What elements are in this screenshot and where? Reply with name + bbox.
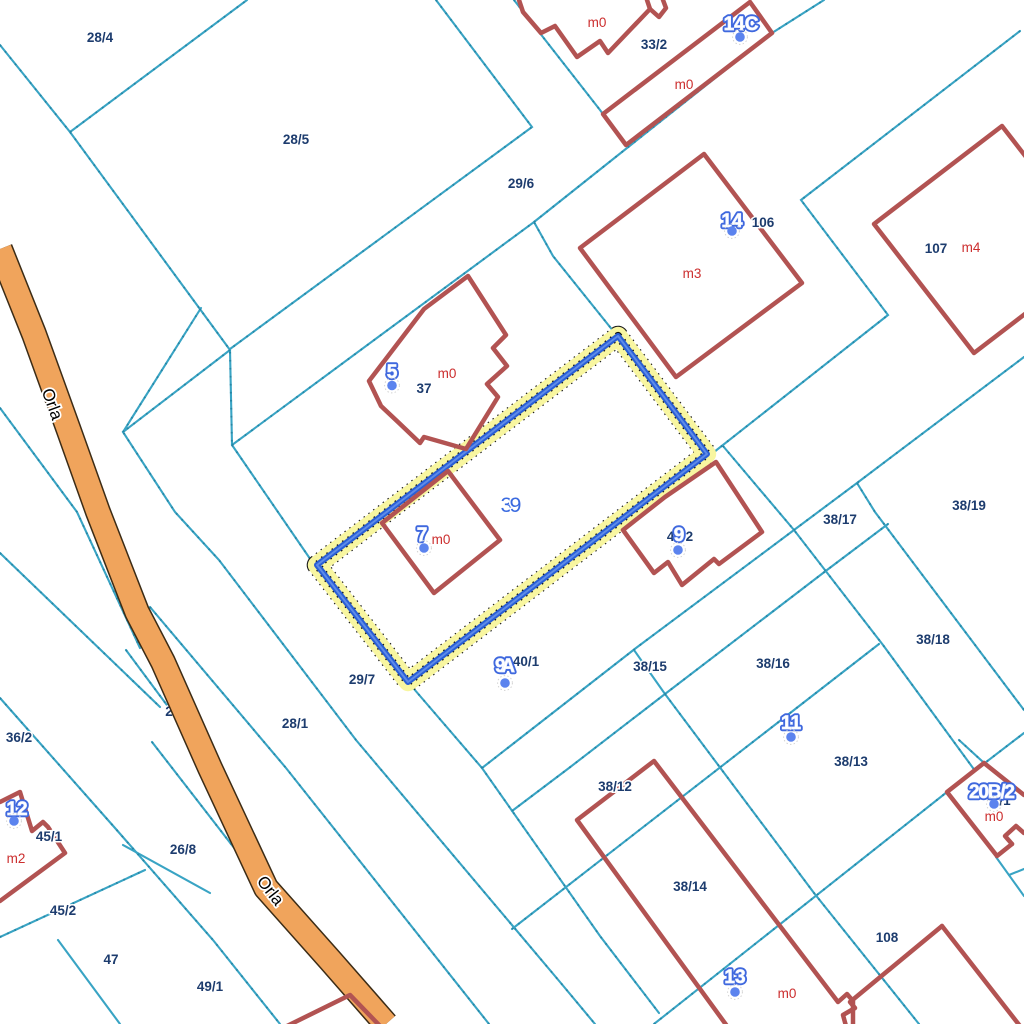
- svg-text:40/1: 40/1: [513, 654, 540, 669]
- svg-text:107: 107: [925, 241, 948, 256]
- svg-text:m4: m4: [962, 240, 981, 255]
- svg-text:45/2: 45/2: [50, 903, 76, 918]
- svg-text:14C: 14C: [724, 14, 759, 35]
- svg-text:m3: m3: [683, 266, 702, 281]
- svg-text:38/15: 38/15: [633, 659, 667, 674]
- svg-text:12: 12: [6, 799, 27, 820]
- svg-text:m0: m0: [438, 366, 457, 381]
- svg-text:26/8: 26/8: [170, 842, 197, 857]
- svg-text:11: 11: [781, 713, 802, 734]
- svg-text:38/13: 38/13: [834, 754, 868, 769]
- svg-text:5: 5: [387, 362, 398, 383]
- svg-text:m0: m0: [432, 532, 451, 547]
- svg-text:38/14: 38/14: [673, 879, 707, 894]
- svg-text:m0: m0: [778, 986, 797, 1001]
- svg-text:9: 9: [674, 525, 685, 546]
- svg-text:36/2: 36/2: [6, 730, 32, 745]
- svg-text:38/12: 38/12: [598, 779, 632, 794]
- svg-text:45/1: 45/1: [36, 829, 63, 844]
- svg-text:29/6: 29/6: [508, 176, 535, 191]
- svg-text:38/16: 38/16: [756, 656, 790, 671]
- svg-text:29/7: 29/7: [349, 672, 375, 687]
- svg-text:38/18: 38/18: [916, 632, 950, 647]
- svg-text:28/4: 28/4: [87, 30, 114, 45]
- svg-text:47: 47: [103, 952, 118, 967]
- svg-text:9A: 9A: [495, 656, 515, 677]
- svg-text:37: 37: [416, 381, 431, 396]
- svg-text:106: 106: [752, 215, 775, 230]
- svg-text:49/1: 49/1: [197, 979, 224, 994]
- svg-text:28/5: 28/5: [283, 132, 310, 147]
- svg-text:33/2: 33/2: [641, 37, 667, 52]
- svg-text:108: 108: [876, 930, 899, 945]
- svg-text:38/19: 38/19: [952, 498, 986, 513]
- svg-text:38/17: 38/17: [823, 512, 857, 527]
- svg-text:m2: m2: [7, 851, 26, 866]
- svg-text:m0: m0: [588, 15, 607, 30]
- svg-text:39: 39: [501, 493, 522, 517]
- svg-text:m0: m0: [675, 77, 694, 92]
- svg-text:7: 7: [417, 525, 428, 546]
- svg-text:28/1: 28/1: [282, 716, 309, 731]
